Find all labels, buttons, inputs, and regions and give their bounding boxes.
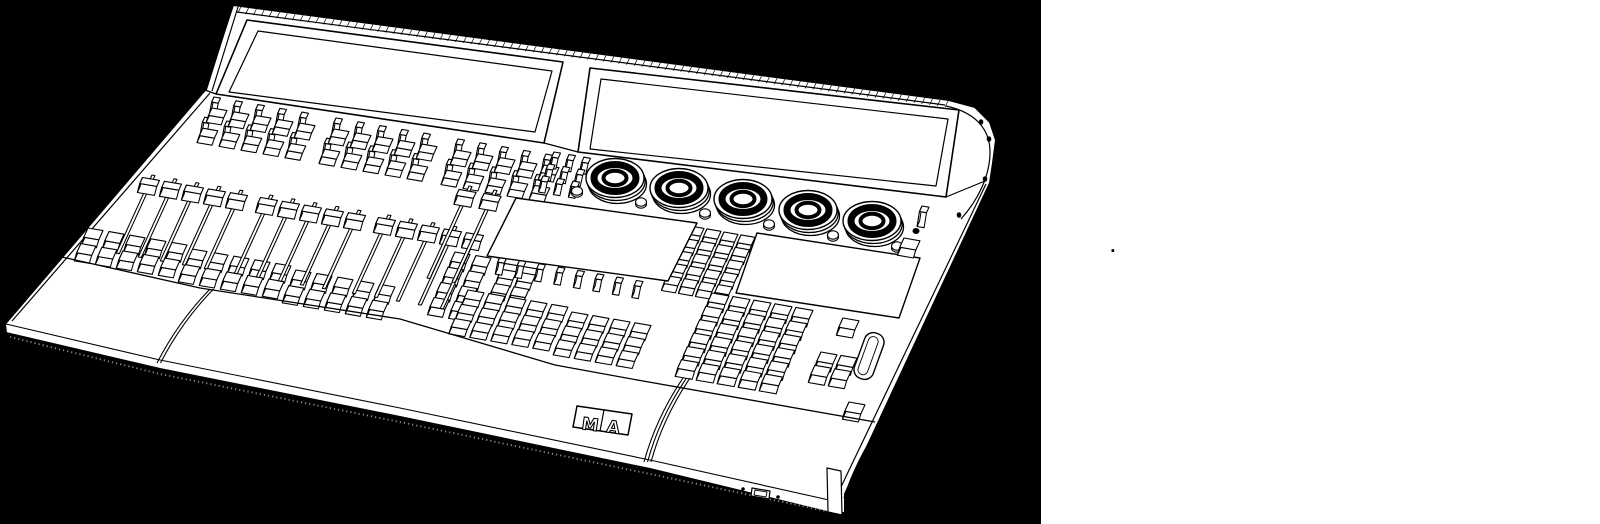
encoder-knob-1 <box>586 159 647 204</box>
encoder-knob-2 <box>650 169 711 214</box>
figure-canvas: MA . <box>0 0 1600 524</box>
console-line-art: MA <box>0 0 1600 524</box>
front-right-foot <box>827 468 842 515</box>
encoder-knob-4 <box>779 191 840 236</box>
encoder-knob-3 <box>714 180 775 225</box>
ma-logo-letter: M <box>580 414 600 436</box>
stray-period-text: . <box>1110 240 1116 255</box>
encoder-knob-5 <box>843 202 904 247</box>
